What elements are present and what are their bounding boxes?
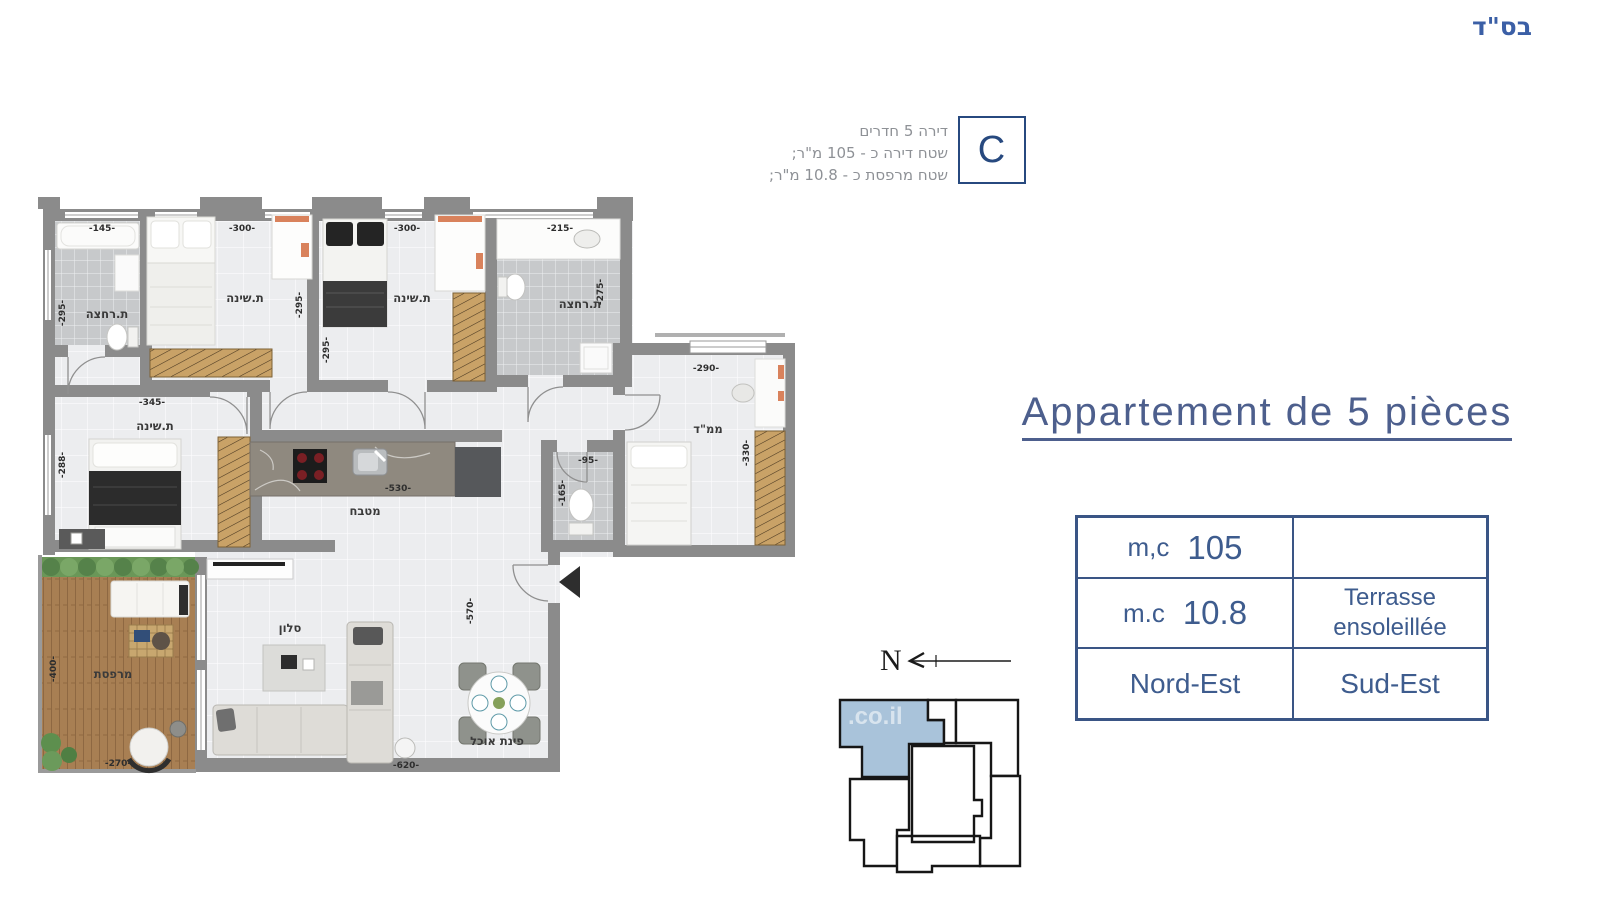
bath2-toilet	[505, 274, 525, 300]
dim-mamad-w: -290-	[693, 364, 720, 374]
keyplan-watermark: .co.il	[848, 703, 903, 730]
spec-terrace-value: 10.8	[1183, 594, 1247, 632]
unit-info: דירה 5 חדרים שטח דירה כ - 105 מ"ר; שטח מ…	[640, 120, 948, 186]
dim-terrace-w: -270-	[105, 759, 132, 769]
spec-orientation-left: Nord-Est	[1078, 649, 1294, 718]
tv	[213, 562, 285, 566]
dim-bed1-h: -295-	[295, 292, 305, 319]
floor-lamp	[395, 738, 415, 758]
keyplan-unit-d	[980, 776, 1020, 866]
arrowhead-icon	[910, 653, 924, 667]
spec-area-label: m,c	[1128, 532, 1170, 563]
mamad-window-ledge	[655, 333, 785, 337]
terrace-sofa	[111, 581, 189, 617]
dim-mamad-h: -330-	[742, 440, 752, 467]
dim-bed2-h: -295-	[322, 337, 332, 364]
bath1-toilet	[107, 324, 127, 350]
label-dining: פינת אוכל	[470, 734, 524, 748]
dim-bath2-h: -275-	[596, 279, 606, 306]
mamad-wardrobe	[755, 431, 785, 545]
bed1-wardrobe	[150, 349, 272, 377]
label-mamad: ממ"ד	[693, 422, 722, 436]
dim-bath2-w: -215-	[547, 224, 574, 234]
keyplan-core	[912, 746, 982, 836]
spec-area-note-cell	[1294, 518, 1486, 579]
keyplan-unit-e	[897, 836, 980, 872]
dim-wc-h: -165-	[558, 480, 568, 507]
label-kitchen: מטבח	[349, 504, 380, 518]
dim-terrace-h: -400-	[49, 656, 59, 683]
dim-salon-w: -620-	[393, 761, 420, 771]
unit-badge-letter: C	[978, 129, 1006, 172]
label-bed3: ת.שינה	[136, 419, 173, 433]
label-bath2: ת.רחצה	[559, 297, 601, 311]
dim-salon-h: -570-	[466, 598, 476, 625]
dim-bed2-w: -300-	[394, 224, 421, 234]
bsd-text: בס"ד	[1452, 12, 1532, 41]
bed3-wardrobe	[218, 437, 250, 547]
terrace-note-line2: ensoleillée	[1333, 613, 1446, 643]
spec-terrace-note-cell: Terrasse ensoleillée	[1294, 579, 1486, 649]
label-bath1: ת.רחצה	[86, 307, 128, 321]
kitchen-cabinet	[455, 447, 501, 497]
bath1-vanity	[115, 255, 139, 291]
dim-bath1-h: -295-	[58, 300, 68, 327]
terrace-round-table	[130, 728, 168, 766]
terrace-note-line1: Terrasse	[1333, 583, 1446, 613]
spec-area-cell: m,c 105	[1078, 518, 1294, 579]
unit-info-line2: שטח דירה כ - 105 מ"ר;	[640, 142, 948, 164]
wc-toilet	[569, 489, 593, 521]
dim-bath1-w: -145-	[89, 224, 116, 234]
spec-terrace-label: m.c	[1123, 598, 1165, 629]
building-keyplan: .co.il	[820, 680, 1025, 875]
label-salon: סלון	[279, 621, 302, 635]
dim-bed1-w: -300-	[229, 224, 256, 234]
label-bed2: ת.שינה	[393, 291, 430, 305]
label-terrace: מרפסת	[94, 667, 132, 681]
north-label: N	[880, 644, 902, 677]
page-title: Appartement de 5 pièces	[1012, 390, 1522, 441]
unit-info-line3: שטח מרפסת כ - 10.8 מ"ר;	[640, 164, 948, 186]
dim-wc-w: -95-	[578, 456, 598, 466]
page: בס"ד דירה 5 חדרים שטח דירה כ - 105 מ"ר; …	[0, 0, 1600, 900]
floorplan: ת.רחצה ת.שינה ת.שינה ת.רחצה ממ"ד ת.שינה …	[35, 195, 795, 777]
mamad-chair	[732, 384, 754, 402]
unit-badge: C	[958, 116, 1026, 184]
spec-table: m,c 105 m.c 10.8 Terrasse ensoleillée No…	[1075, 515, 1489, 721]
terrace-pouf	[170, 721, 186, 737]
north-arrow: N	[866, 640, 1016, 680]
spec-terrace-cell: m.c 10.8	[1078, 579, 1294, 649]
dim-bed3-h: -288-	[58, 452, 68, 479]
spec-orientation-right: Sud-Est	[1294, 649, 1486, 718]
bed2-wardrobe	[453, 293, 485, 381]
entrance-arrow-icon	[559, 566, 580, 598]
dim-bed3-w: -345-	[139, 398, 166, 408]
unit-info-line1: דירה 5 חדרים	[640, 120, 948, 142]
spec-area-value: 105	[1187, 529, 1242, 567]
label-bed1: ת.שינה	[226, 291, 263, 305]
dim-kitchen-w: -530-	[385, 484, 412, 494]
